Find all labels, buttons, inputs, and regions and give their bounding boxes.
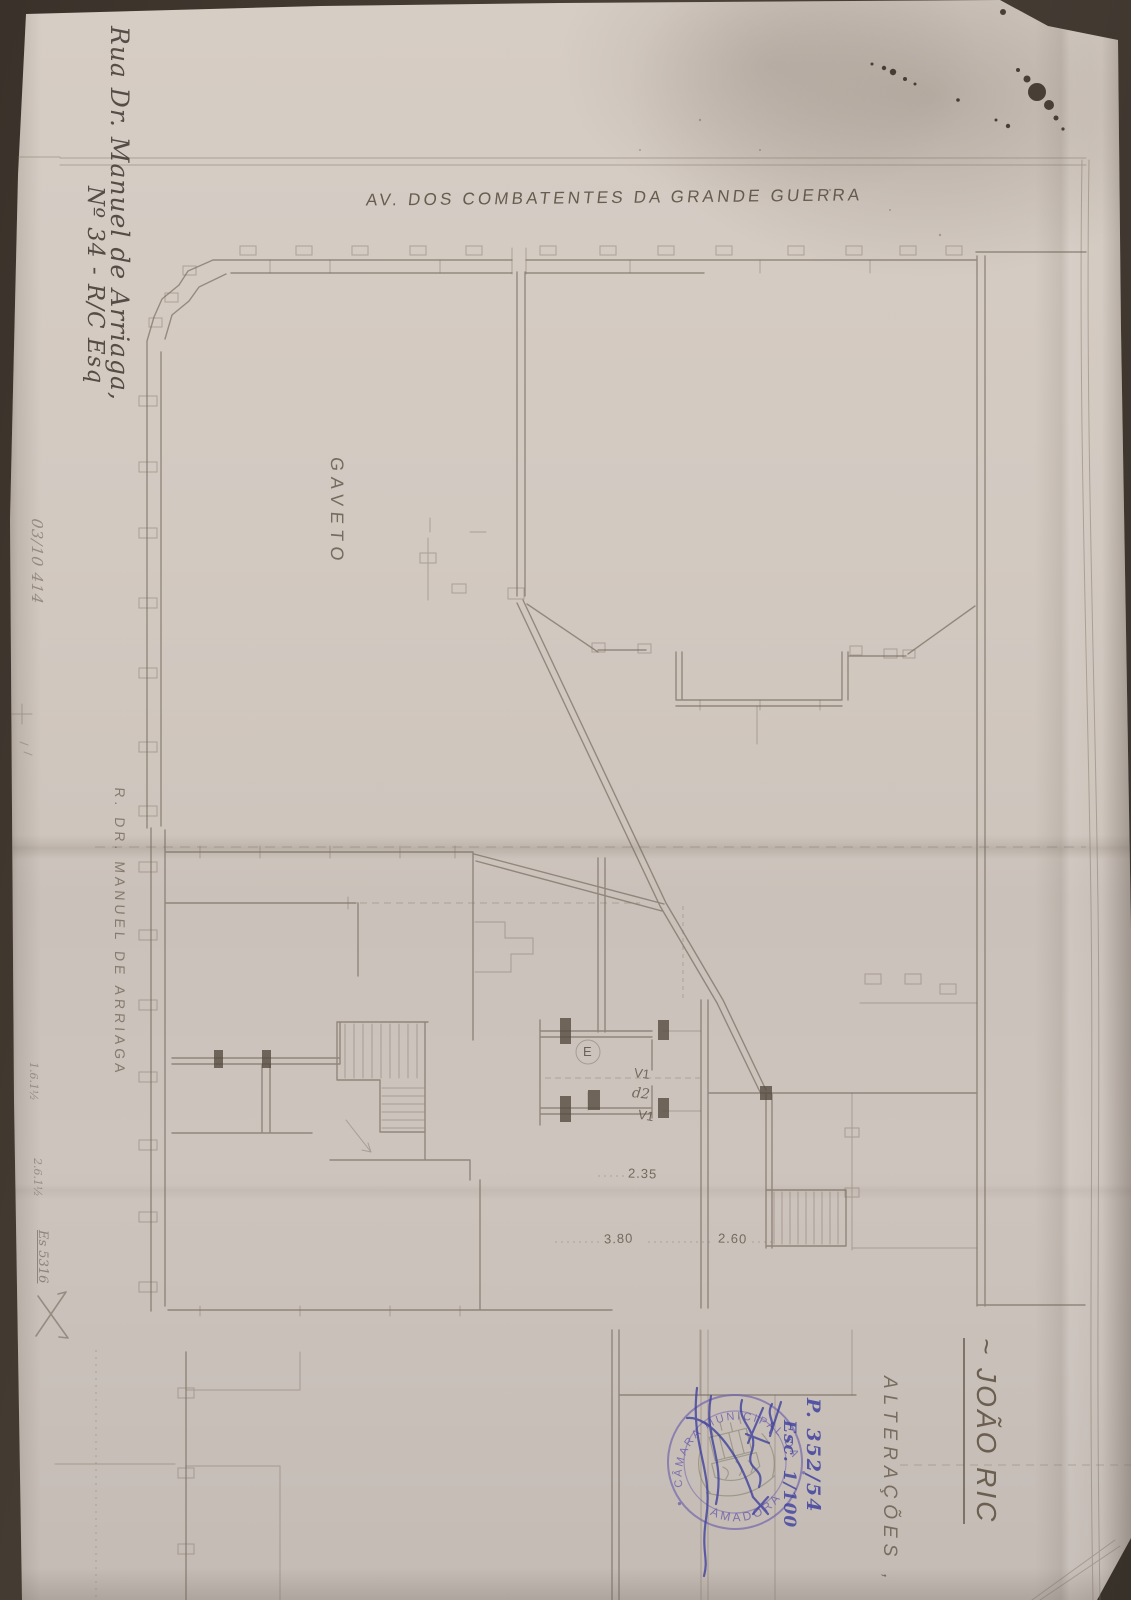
scanned-blueprint-scene: CÂMARA MUNICIPAL DA AMADORA AV. DOS C (0, 0, 1131, 1600)
ink-blot (871, 63, 874, 66)
dimension-left: 3.80 (604, 1230, 634, 1246)
plan-linework: CÂMARA MUNICIPAL DA AMADORA (0, 0, 1131, 1600)
margin-note-a: 1.6.1½ (27, 1062, 40, 1101)
ink-blot (956, 98, 960, 102)
window-label-top: V1 (633, 1065, 651, 1082)
margin-note-c: Es 5316 (35, 1230, 50, 1283)
ink-blot (995, 119, 998, 122)
speck (699, 119, 701, 121)
ink-blot (1016, 68, 1020, 72)
ink-blot (903, 77, 907, 81)
pencil-main (147, 252, 1086, 1600)
jamb-rects (214, 1018, 772, 1122)
ink-blot (1006, 124, 1010, 128)
address-note-line1: Rua Dr. Manuel de Arriaga, (105, 26, 134, 401)
wall-ticks (200, 846, 588, 1316)
ink-blot (1000, 9, 1006, 15)
street-label-left: R. DR. MANUEL DE ARRIAGA (112, 787, 128, 1077)
interior-walls (166, 852, 977, 1600)
margin-x-doodle (36, 1292, 68, 1338)
speck (939, 234, 941, 236)
facade-walls (147, 252, 1086, 1311)
alterations-label: ALTERAÇÕES , (878, 1376, 900, 1585)
process-number-note: P. 352/54 (802, 1398, 824, 1513)
door-label: d2 (631, 1085, 650, 1103)
ink-blot (1061, 127, 1064, 130)
registration-cross (12, 704, 32, 755)
signature-stroke (709, 1396, 718, 1504)
signature-stroke (696, 1388, 708, 1576)
ink-blot (882, 66, 886, 70)
dimension-right: 2.60 (718, 1230, 748, 1246)
dimension-hall: 2.35 (628, 1165, 658, 1181)
owner-name-label: ~ JOÃO RIC (963, 1338, 1002, 1524)
courtyard-details (420, 248, 915, 1111)
ink-blot (890, 69, 896, 75)
ink-blot (1028, 83, 1046, 101)
corner-label-gaveto: GAVETO (326, 456, 347, 567)
address-note-line2: Nº 34 - R/C Esq (82, 186, 108, 384)
speck (759, 149, 761, 151)
facade-notches (149, 246, 962, 327)
scale-note: Esc. 1/100 (779, 1420, 799, 1528)
speck (889, 209, 891, 211)
ink-blot (914, 83, 917, 86)
window-label-bottom: V1 (637, 1107, 655, 1125)
ink-blot (1024, 76, 1031, 83)
entry-label: E (583, 1044, 592, 1059)
courtyard-walls (474, 272, 975, 1092)
ink-blot (1044, 100, 1054, 110)
speck (639, 149, 641, 151)
ink-blot (1054, 116, 1059, 121)
right-room-details (475, 922, 977, 1250)
left-wall-notches (139, 396, 157, 1292)
sheet-border (18, 157, 1100, 1600)
door-jambs (214, 1018, 772, 1122)
margin-note-date: 03/10 414 (28, 517, 46, 605)
margin-note-b: 2.6.1½ (31, 1158, 44, 1197)
x-doodle-strokes (36, 1292, 68, 1338)
